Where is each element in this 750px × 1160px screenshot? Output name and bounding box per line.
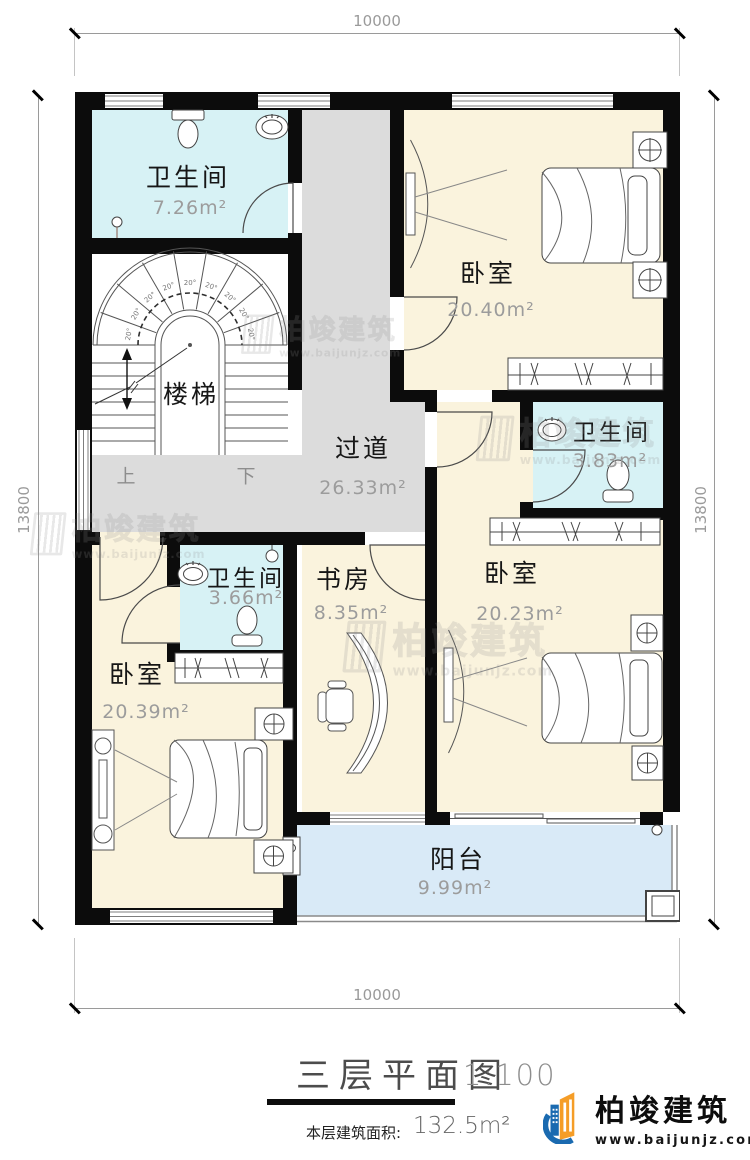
room-area-balcony: 9.99m² (418, 877, 492, 899)
pillow (244, 748, 262, 830)
room-area-study: 8.35m² (314, 602, 388, 624)
floor-plan: 20° 20° 20° 20° 20° 20° 20° 20° 20° (75, 92, 680, 925)
stairs-up-label: 上 (116, 462, 135, 489)
room-label-bath-top: 卫生间 (146, 158, 230, 194)
room-label-hallway: 过道 (335, 429, 391, 465)
room-area-bedroom-right: 20.23m² (476, 603, 564, 625)
toilet-icon (178, 120, 198, 148)
toilet-icon (237, 606, 257, 634)
room-area-bedroom-top: 20.40m² (447, 299, 535, 321)
brand-logo-icon (543, 1086, 587, 1144)
ext-line (679, 938, 680, 1013)
title-underline (267, 1099, 455, 1105)
room-label-bedroom-top: 卧室 (460, 254, 516, 290)
toilet-base (232, 635, 262, 646)
dim-line-bottom (75, 1008, 680, 1009)
room-label-bedroom-right: 卧室 (484, 554, 540, 590)
room-label-bath-mid: 卫生间 (573, 413, 651, 447)
room-area-bath-low: 3.66m² (209, 587, 283, 609)
dim-line-top (75, 33, 680, 34)
dim-line-right (714, 95, 715, 925)
room-label-bedroom-low: 卧室 (109, 655, 165, 691)
room-label-stairs: 楼梯 (163, 375, 219, 411)
floorplan-page: 10000 10000 13800 13800 (0, 0, 750, 1160)
sliding-door (450, 813, 640, 824)
room-area-bath-top: 7.26m² (153, 197, 227, 219)
brand-logo: 柏竣建筑 www.baijunjz.com (543, 1086, 750, 1148)
dim-line-left (38, 95, 39, 925)
toilet-base (603, 490, 633, 502)
brand-url: www.baijunjz.com (595, 1133, 750, 1148)
room-hallway (390, 402, 425, 532)
floor-area-label: 本层建筑面积: (306, 1122, 401, 1143)
dim-label-left: 13800 (15, 481, 33, 539)
room-area-bedroom-low: 20.39m² (102, 701, 190, 723)
watermark-logo-icon (30, 512, 67, 555)
pillow (630, 660, 648, 736)
drain-icon (112, 217, 122, 227)
svg-text:20°: 20° (184, 279, 196, 287)
dim-label-right: 13800 (692, 481, 710, 539)
toilet-tank (172, 110, 204, 120)
dim-label-bottom: 10000 (348, 986, 406, 1004)
room-area-bath-mid: 3.83m² (573, 450, 647, 472)
chair-icon (326, 689, 353, 723)
dim-label-top: 10000 (348, 12, 406, 30)
pillow (628, 176, 647, 255)
room-label-balcony: 阳台 (430, 840, 486, 876)
stairs-down-label: 下 (236, 462, 255, 489)
floor-area-value: 132.5m² (413, 1113, 510, 1139)
brand-name: 柏竣建筑 (595, 1086, 750, 1130)
room-area-hallway: 26.33m² (319, 477, 407, 499)
ext-line (74, 938, 75, 1013)
room-label-study: 书房 (316, 560, 372, 596)
